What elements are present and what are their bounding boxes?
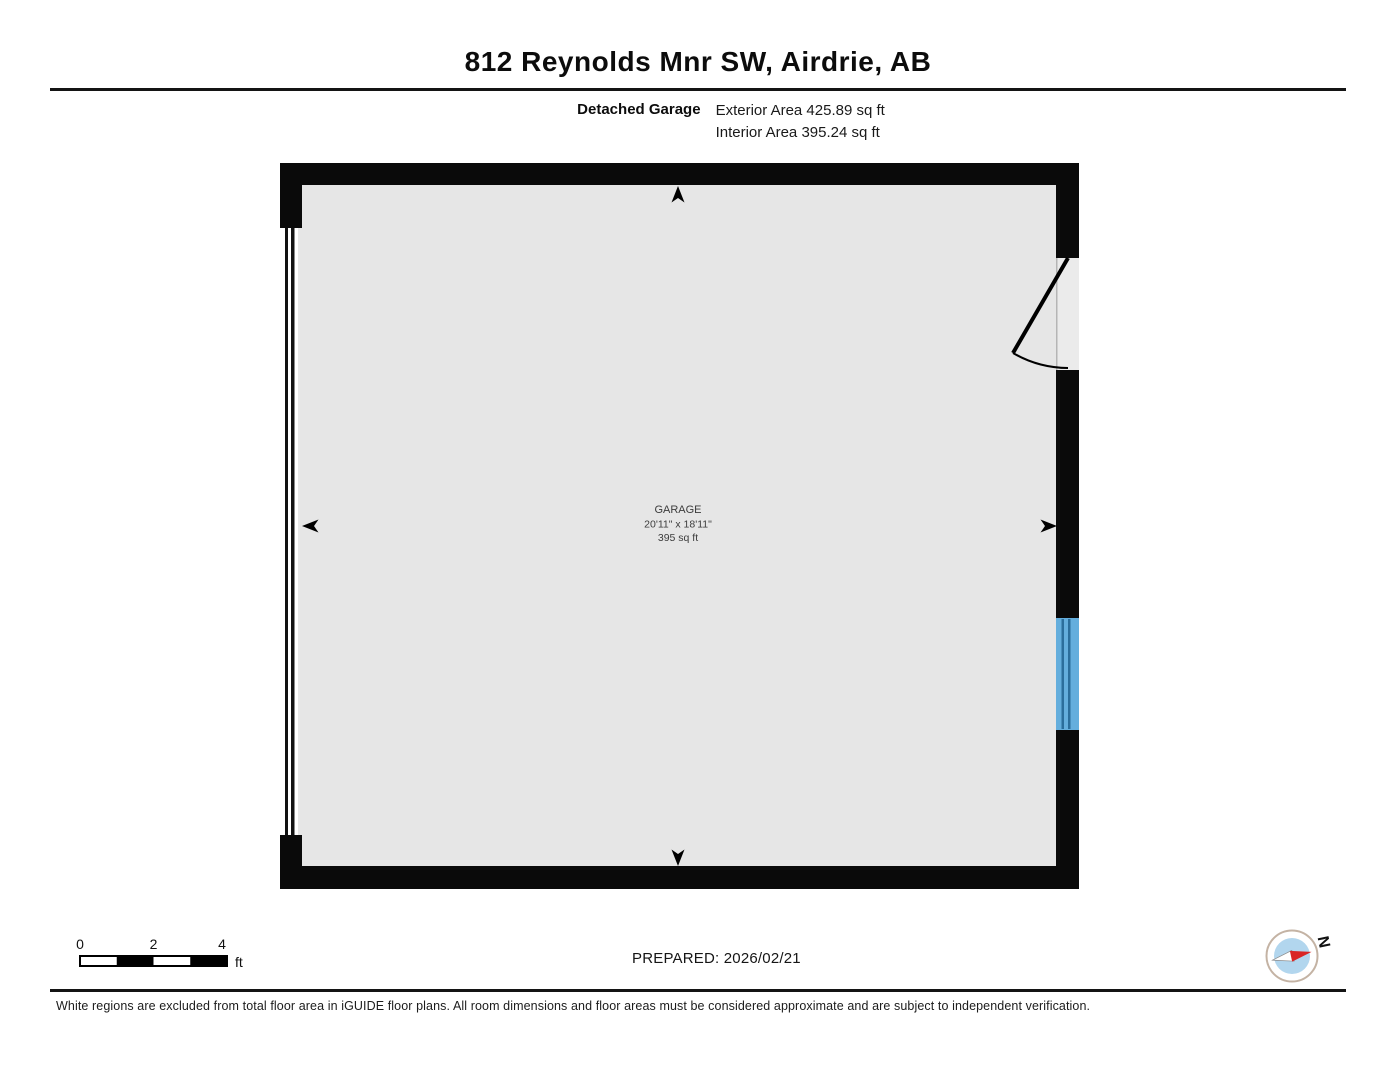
disclaimer-text: White regions are excluded from total fl… [56, 999, 1096, 1013]
floorplan-page: 812 Reynolds Mnr SW, Airdrie, AB Detache… [0, 0, 1396, 1080]
floorplan-canvas: GARAGE 20'11" x 18'11" 395 sq ft [280, 163, 1079, 889]
wall-right-lower [1056, 730, 1079, 889]
interior-area-label: Interior Area 395.24 sq ft [716, 122, 885, 144]
compass-north-label: N [1314, 935, 1333, 950]
scale-bar: 0 2 4 ft [70, 933, 270, 982]
scale-tick-4: 4 [218, 936, 226, 952]
footer-divider [50, 989, 1346, 992]
wall-top [280, 163, 1079, 185]
wall-left-top-block [280, 163, 302, 228]
scale-unit-label: ft [235, 954, 243, 970]
floorplan-svg: GARAGE 20'11" x 18'11" 395 sq ft [280, 163, 1079, 889]
window [1056, 618, 1079, 730]
wall-right-upper [1056, 163, 1079, 258]
scale-bar-svg: 0 2 4 ft [70, 933, 270, 977]
scale-tick-0: 0 [76, 936, 84, 952]
scale-segment-black-2 [190, 956, 227, 966]
floor-info: Detached Garage Exterior Area 425.89 sq … [0, 100, 1396, 144]
scale-segment-black-1 [117, 956, 154, 966]
room-area-label: 395 sq ft [658, 532, 698, 544]
page-title: 812 Reynolds Mnr SW, Airdrie, AB [0, 46, 1396, 78]
room-dimensions-label: 20'11" x 18'11" [644, 519, 712, 531]
garage-door-panel-line [291, 228, 295, 835]
garage-door-outer-line [285, 228, 288, 835]
exterior-area-label: Exterior Area 425.89 sq ft [716, 100, 885, 122]
floor-name-label: Detached Garage [577, 100, 700, 144]
header-divider [50, 88, 1346, 91]
wall-bottom [280, 866, 1079, 889]
prepared-date-label: PREPARED: 2026/02/21 [632, 950, 801, 967]
window-pane-line-1 [1062, 619, 1065, 729]
compass-svg: N [1261, 925, 1345, 987]
wall-right-middle [1056, 370, 1079, 618]
wall-left-bottom-block [280, 835, 302, 889]
scale-tick-2: 2 [150, 936, 158, 952]
room-name-label: GARAGE [654, 504, 701, 516]
window-pane-line-2 [1068, 619, 1071, 729]
compass-icon: N [1261, 925, 1345, 992]
